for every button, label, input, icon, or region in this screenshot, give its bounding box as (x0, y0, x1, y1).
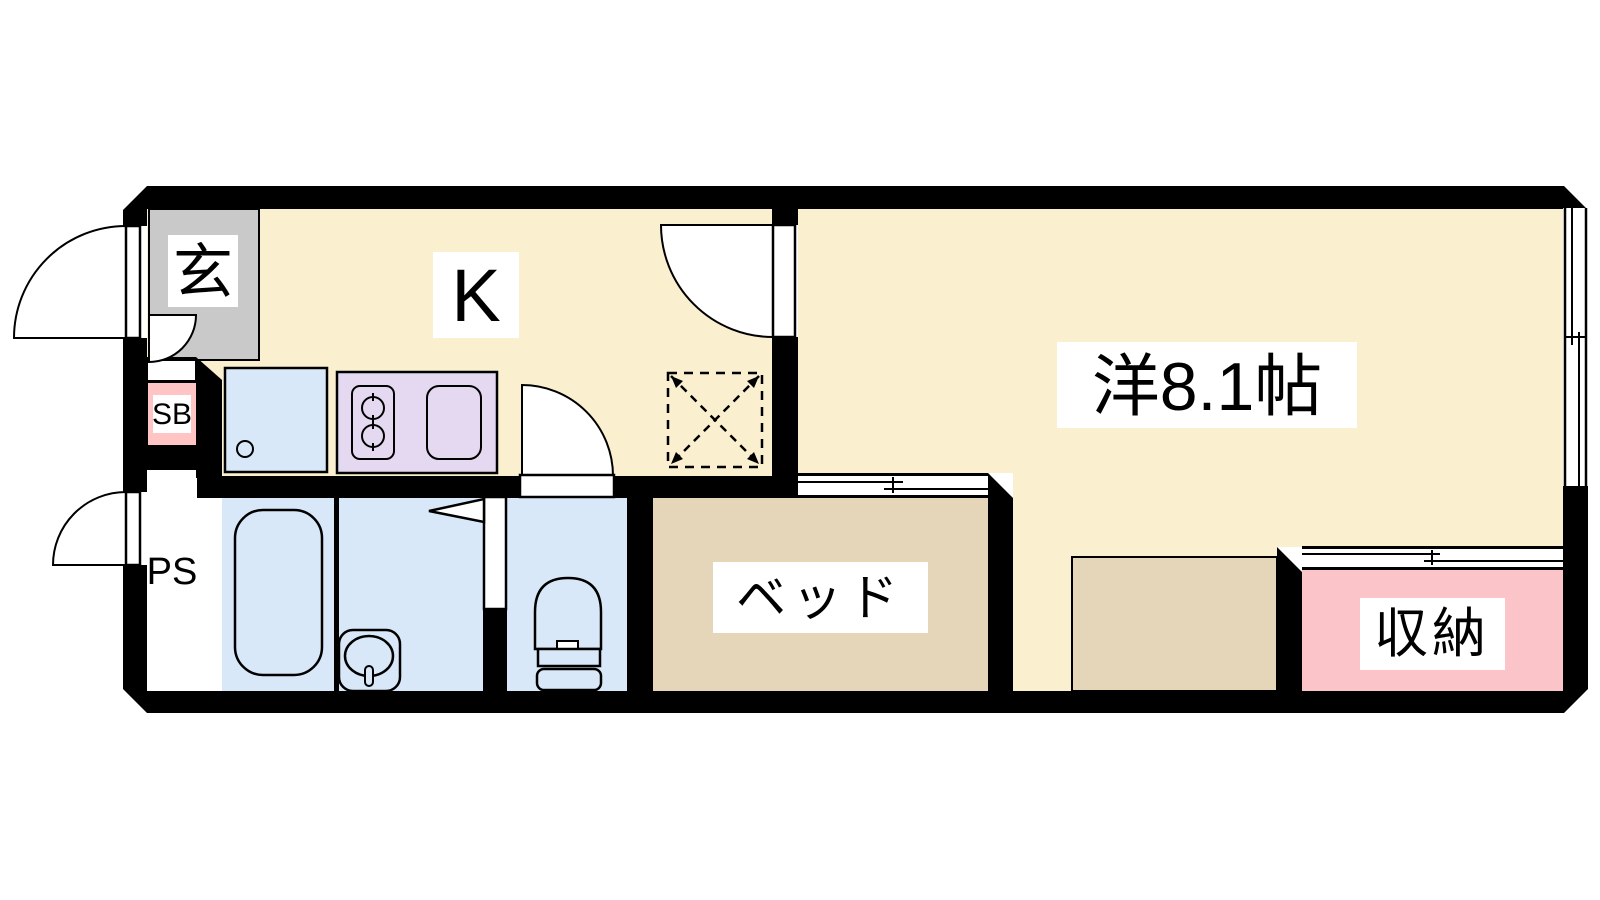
closet-label-text: 収納 (1374, 604, 1490, 664)
kitchen-sink-unit (225, 368, 327, 472)
wall-kitchen-west-stub (772, 209, 798, 225)
washroom-door-leaf (484, 497, 506, 609)
window-bed-partition (798, 473, 988, 498)
kitchen-label: K (433, 252, 519, 338)
western-room-floor (798, 209, 1563, 473)
wall-kitchen-west-lower (772, 337, 798, 498)
counter-platform (1072, 557, 1277, 691)
floorplan-canvas: 玄 K 洋8.1帖 ベッド 収納 SB PS (0, 0, 1600, 900)
wall-kitchen-bath (197, 476, 798, 498)
entrance-door-leaf (126, 226, 140, 338)
entrance-door (14, 226, 140, 338)
pipe-space-door (53, 492, 140, 565)
western-room-label-text: 洋8.1帖 (1092, 349, 1323, 425)
toilet-icon (535, 578, 601, 690)
wall-bottom (123, 691, 1588, 713)
wall-bed-right (988, 473, 1013, 691)
stove-unit (337, 372, 497, 473)
wall-top (123, 186, 1588, 209)
wall-left-middle (123, 338, 147, 492)
genkan-label-text: 玄 (173, 239, 233, 306)
floorplan-svg: 玄 K 洋8.1帖 ベッド 収納 SB PS (0, 0, 1600, 900)
closet-sliding-door (1302, 546, 1563, 570)
wall-right-lower (1563, 486, 1588, 695)
bed-label-text: ベッド (736, 570, 904, 626)
wall-washroom-toilet (483, 609, 507, 691)
bed-label: ベッド (713, 562, 928, 633)
toilet-door-leaf (520, 475, 614, 497)
wall-toilet-bed (627, 498, 653, 691)
wall-closet-left (1277, 547, 1302, 691)
entry-niche (148, 361, 195, 380)
closet-label: 収納 (1360, 598, 1505, 670)
pipe-space-door-leaf (126, 492, 140, 565)
wall-left-lower (123, 565, 147, 695)
western-room-label: 洋8.1帖 (1057, 342, 1357, 428)
pipe-space-label-text: PS (147, 551, 198, 593)
genkan-label: 玄 (168, 235, 238, 307)
shoe-box-label: SB (148, 383, 196, 445)
western-room-floor-right (1277, 473, 1563, 547)
shoe-box-label-text: SB (152, 398, 192, 431)
kitchen-room-door-leaf (773, 225, 795, 337)
kitchen-label-text: K (451, 254, 500, 337)
window-right-wall (1563, 208, 1588, 486)
